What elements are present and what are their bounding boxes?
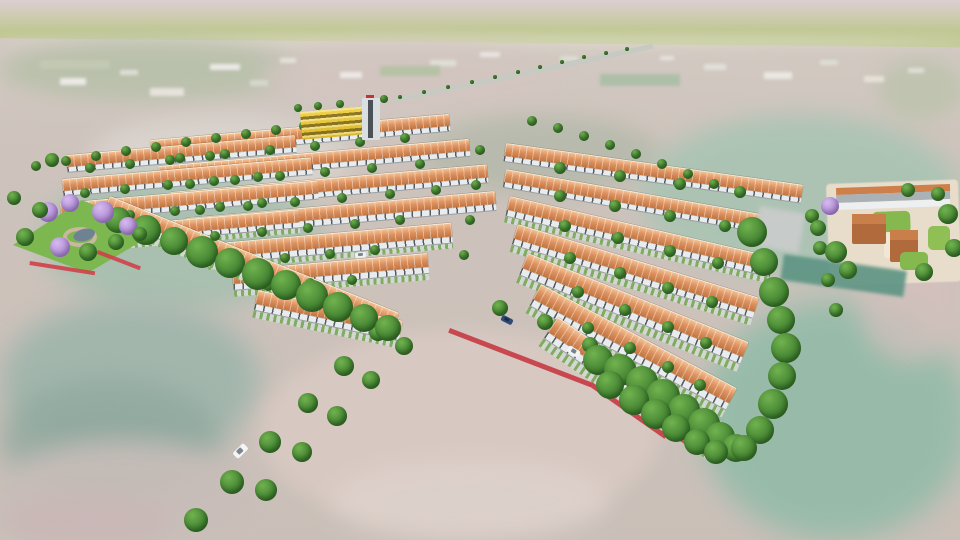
- tree: [662, 321, 674, 333]
- tree: [350, 219, 360, 229]
- tree: [694, 379, 706, 391]
- tree: [810, 220, 826, 236]
- tree: [165, 155, 175, 165]
- tree: [230, 175, 240, 185]
- tree: [211, 133, 221, 143]
- tree: [310, 141, 320, 151]
- tree: [619, 304, 631, 316]
- tree: [560, 60, 564, 64]
- school-brick-2-roof: [890, 230, 918, 240]
- distant-building: [764, 72, 792, 79]
- tree: [712, 257, 724, 269]
- commercial-building: [300, 106, 366, 139]
- tree: [572, 286, 584, 298]
- tree: [664, 210, 676, 222]
- distant-building: [280, 58, 296, 63]
- tree: [709, 179, 719, 189]
- car-windshield: [358, 253, 363, 257]
- tree: [170, 206, 180, 216]
- tree: [825, 241, 847, 263]
- tree: [255, 479, 277, 501]
- tree: [347, 275, 357, 285]
- tree: [674, 178, 686, 190]
- tree: [120, 184, 130, 194]
- tree: [400, 133, 410, 143]
- tree: [209, 176, 219, 186]
- tree: [664, 245, 676, 257]
- tree: [298, 393, 318, 413]
- tree: [492, 300, 508, 316]
- tree: [7, 191, 21, 205]
- tree: [362, 371, 380, 389]
- tree: [564, 252, 576, 264]
- distant-building: [908, 68, 924, 73]
- tree: [184, 508, 208, 532]
- tree: [265, 145, 275, 155]
- tree: [422, 90, 426, 94]
- tree: [471, 180, 481, 190]
- purple-tree: [92, 201, 114, 223]
- distant-building: [40, 60, 110, 69]
- tree: [325, 249, 335, 259]
- tree: [61, 156, 71, 166]
- car-white: [355, 252, 366, 259]
- tree: [181, 137, 191, 147]
- car-windshield: [504, 317, 510, 322]
- distant-building: [60, 78, 86, 85]
- tree: [91, 151, 101, 161]
- tree: [163, 180, 173, 190]
- tree: [625, 47, 629, 51]
- tree: [719, 220, 731, 232]
- tree: [829, 303, 843, 317]
- tree: [395, 337, 413, 355]
- tree: [242, 258, 274, 290]
- tree: [292, 442, 312, 462]
- tree: [768, 362, 796, 390]
- tree: [704, 440, 728, 464]
- lot-fog: [330, 460, 610, 540]
- tree: [257, 198, 267, 208]
- tree: [215, 248, 245, 278]
- tree: [662, 361, 674, 373]
- tree: [290, 197, 300, 207]
- tree: [771, 333, 801, 363]
- tree: [415, 159, 425, 169]
- tree: [334, 356, 354, 376]
- aerial-render-housing-development: [0, 0, 960, 540]
- tree: [294, 104, 302, 112]
- tree: [470, 80, 474, 84]
- tree: [554, 162, 566, 174]
- tree: [220, 470, 244, 494]
- tree: [79, 243, 97, 261]
- tree: [737, 217, 767, 247]
- tree: [579, 131, 589, 141]
- tree: [624, 342, 636, 354]
- tree: [612, 232, 624, 244]
- tree: [750, 248, 778, 276]
- tree: [767, 306, 795, 334]
- tree: [700, 337, 712, 349]
- tree: [662, 282, 674, 294]
- tree: [160, 227, 188, 255]
- tree: [605, 140, 615, 150]
- tree: [582, 55, 586, 59]
- tree: [133, 227, 147, 241]
- tree: [320, 167, 330, 177]
- tree: [538, 65, 542, 69]
- tree: [241, 129, 251, 139]
- tree: [582, 322, 594, 334]
- purple-tree: [821, 197, 839, 215]
- tree: [323, 292, 353, 322]
- tree: [380, 95, 388, 103]
- tree: [125, 159, 135, 169]
- distant-building: [380, 66, 440, 76]
- tree: [253, 172, 263, 182]
- tree: [759, 277, 789, 307]
- tree: [257, 227, 267, 237]
- tree: [915, 263, 933, 281]
- tree: [367, 163, 377, 173]
- car-windshield: [236, 447, 244, 455]
- tree: [327, 406, 347, 426]
- tree: [336, 100, 344, 108]
- tree: [731, 435, 757, 461]
- distant-building: [120, 70, 138, 75]
- tree: [375, 315, 401, 341]
- tree: [16, 228, 34, 246]
- tree: [303, 223, 313, 233]
- tree: [80, 188, 90, 198]
- clock-tower-flag: [366, 95, 374, 98]
- tree: [108, 234, 124, 250]
- tree: [901, 183, 915, 197]
- tree: [370, 245, 380, 255]
- tree: [85, 163, 95, 173]
- tree: [527, 116, 537, 126]
- car-windshield: [570, 348, 577, 354]
- distant-building: [250, 80, 268, 86]
- tree: [220, 149, 230, 159]
- tree: [614, 267, 626, 279]
- tree: [271, 125, 281, 135]
- tree: [395, 215, 405, 225]
- tree: [614, 170, 626, 182]
- distant-building: [864, 76, 884, 82]
- tree: [758, 389, 788, 419]
- tree: [475, 145, 485, 155]
- distant-building: [820, 60, 838, 65]
- clock-tower-window: [368, 100, 373, 138]
- car-blue: [500, 315, 513, 326]
- purple-tree: [61, 194, 79, 212]
- distant-building: [704, 64, 726, 70]
- tree: [431, 185, 441, 195]
- tree: [337, 193, 347, 203]
- field-pink-corner: [0, 498, 170, 540]
- tree: [32, 202, 48, 218]
- tree: [175, 153, 185, 163]
- tree: [314, 102, 322, 110]
- tree: [459, 250, 469, 260]
- tree: [121, 146, 131, 156]
- tree: [931, 187, 945, 201]
- tree: [493, 75, 497, 79]
- distant-building: [150, 88, 184, 96]
- distant-building: [600, 74, 680, 86]
- tree: [945, 239, 960, 257]
- tree: [45, 153, 59, 167]
- tree: [398, 95, 402, 99]
- tree: [631, 149, 641, 159]
- car-white: [232, 443, 248, 459]
- tree: [280, 253, 290, 263]
- tree: [151, 142, 161, 152]
- tree: [537, 314, 553, 330]
- distant-building: [660, 56, 674, 60]
- tree: [205, 151, 215, 161]
- tree: [609, 200, 621, 212]
- school-brick-1-roof: [852, 214, 886, 224]
- tree: [195, 205, 205, 215]
- distant-building: [210, 64, 240, 70]
- tree: [559, 220, 571, 232]
- tree: [259, 431, 281, 453]
- tree: [839, 261, 857, 279]
- tree: [465, 215, 475, 225]
- purple-tree: [50, 237, 70, 257]
- tree: [275, 171, 285, 181]
- tree: [604, 51, 608, 55]
- tree: [553, 123, 563, 133]
- tree: [657, 159, 667, 169]
- tree: [516, 70, 520, 74]
- tree: [734, 186, 746, 198]
- tree: [215, 202, 225, 212]
- tree: [554, 190, 566, 202]
- tree: [385, 189, 395, 199]
- tree: [350, 304, 378, 332]
- distant-building: [340, 72, 362, 78]
- tree: [706, 296, 718, 308]
- tree: [31, 161, 41, 171]
- tree: [938, 204, 958, 224]
- tree: [243, 201, 253, 211]
- tree: [821, 273, 835, 287]
- tree: [185, 179, 195, 189]
- tree: [446, 85, 450, 89]
- tree: [683, 169, 693, 179]
- world-layer: [0, 0, 960, 540]
- distant-building: [480, 52, 500, 57]
- tree: [186, 236, 218, 268]
